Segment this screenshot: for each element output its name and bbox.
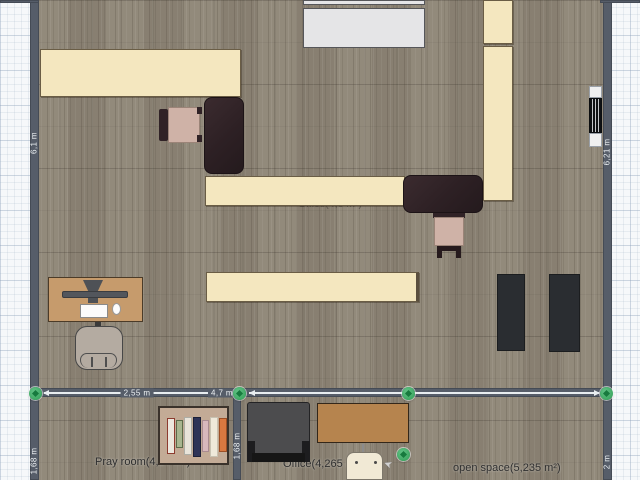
table-white-top[interactable] xyxy=(303,8,425,48)
sofa-base xyxy=(252,453,305,462)
chair-legs xyxy=(437,246,461,258)
wall-handle[interactable] xyxy=(233,387,246,400)
chair-seat xyxy=(168,107,200,143)
book-1 xyxy=(167,418,175,454)
wall-handle[interactable] xyxy=(29,387,42,400)
measurement-divider: 1,68 m xyxy=(233,433,242,460)
mat-left[interactable] xyxy=(497,274,525,351)
chair-armrest-bottom xyxy=(197,135,202,142)
bookshelf[interactable] xyxy=(158,406,229,465)
book-5 xyxy=(202,420,209,452)
book-7 xyxy=(219,418,227,452)
table-white-strip[interactable] xyxy=(303,0,425,5)
radiator[interactable] xyxy=(589,86,602,147)
measurement-left-top: 6,1 m xyxy=(30,132,39,154)
sofa[interactable] xyxy=(247,402,310,462)
book-2 xyxy=(176,420,183,448)
wall-handle[interactable] xyxy=(402,387,415,400)
measurement-left-bottom: 1,68 m xyxy=(30,448,39,475)
desk-counter-top-left[interactable] xyxy=(40,49,241,97)
wall-stub-top-left[interactable] xyxy=(0,0,39,3)
chair-seat-front xyxy=(80,353,117,368)
chair-seat xyxy=(434,217,464,246)
chair-seam-left xyxy=(91,357,93,367)
keyboard xyxy=(80,304,108,318)
floorplan-canvas: Office(4,6 m²) xyxy=(0,0,640,480)
chair-top-left[interactable] xyxy=(158,105,204,145)
wall-handle[interactable] xyxy=(600,387,613,400)
dimension-arrow-icon xyxy=(249,390,255,396)
desk-dark-top-left[interactable] xyxy=(204,97,244,174)
cabinet-column-upper[interactable] xyxy=(483,0,513,44)
room-label-open-space: open space(5,235 m²) xyxy=(453,462,561,474)
dimension-arrow-icon xyxy=(43,390,49,396)
dimension-label-2-55: 2,55 m xyxy=(121,389,154,398)
monitor-base xyxy=(88,298,98,303)
radiator-cap-top xyxy=(589,86,602,98)
chair-dot-left xyxy=(355,461,358,464)
chair-middle[interactable] xyxy=(432,213,466,259)
book-6 xyxy=(210,417,218,457)
chair-back-bar xyxy=(159,109,168,141)
chair-armrest-top xyxy=(197,107,202,114)
mat-right[interactable] xyxy=(549,274,580,352)
chair-dot-right xyxy=(374,461,377,464)
office-chair[interactable] xyxy=(75,326,123,370)
wall-right[interactable] xyxy=(603,0,612,480)
monitor-screen xyxy=(62,291,128,298)
computer-desk[interactable] xyxy=(48,277,143,327)
chair-office-cream[interactable] xyxy=(346,452,383,480)
wall-stub-top-right[interactable] xyxy=(600,0,640,3)
dimension-line-right xyxy=(249,392,599,394)
cabinet-column-lower[interactable] xyxy=(483,46,513,201)
sofa-body xyxy=(247,402,310,455)
radiator-grill xyxy=(589,98,602,133)
radiator-cap-bottom xyxy=(589,133,602,147)
measurement-right-bottom: 2 m xyxy=(603,455,612,470)
dimension-label-4-7: 4,7 m xyxy=(208,389,236,398)
book-4 xyxy=(193,417,201,457)
desk-dark-middle[interactable] xyxy=(403,175,483,213)
desk-cream-middle[interactable] xyxy=(205,176,405,206)
measurement-right-top: 6,21 m xyxy=(603,139,612,166)
mouse xyxy=(112,303,121,315)
wall-handle[interactable] xyxy=(397,448,410,461)
desk-cream-lower[interactable] xyxy=(206,272,419,302)
desk-office-brown[interactable] xyxy=(317,403,409,443)
wall-left[interactable] xyxy=(30,0,39,480)
chair-seam-right xyxy=(105,357,107,367)
book-3 xyxy=(184,417,192,455)
